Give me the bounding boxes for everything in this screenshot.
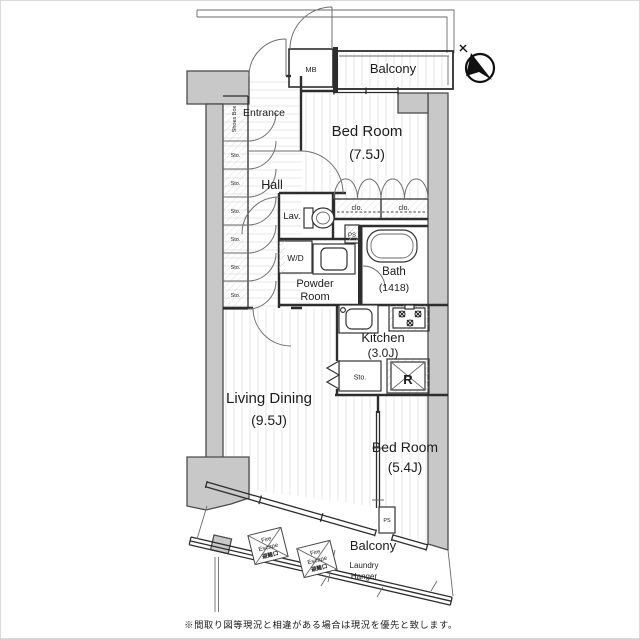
fire-escape-hatch-2: Fire Escape 避難口 — [297, 540, 337, 577]
refrigerator-label: R — [403, 372, 413, 387]
storage-label-5: Sto. — [231, 265, 241, 271]
washer-dryer-label: W/D — [287, 253, 304, 263]
bathtub-icon — [367, 230, 417, 262]
pipe-space-label-lower: PS — [383, 518, 391, 524]
north-arrow-icon — [460, 45, 494, 82]
kitchen-label: Kitchen — [361, 330, 404, 345]
fire-escape-hatch-1: Fire Escape 避難口 — [248, 527, 288, 564]
closet-label-2: clo. — [399, 205, 410, 212]
bath-label: Bath — [382, 266, 406, 278]
bedroom-2-size: (5.4J) — [388, 460, 423, 475]
living-dining-label: Living Dining — [226, 390, 312, 407]
laundry-hanger-label-line2: Hanger — [351, 572, 378, 581]
kitchen-storage-label: Sto. — [354, 375, 367, 382]
storage-label-2: Sto. — [231, 181, 241, 187]
balcony-top-label: Balcony — [370, 61, 417, 76]
stove-icon — [389, 305, 429, 331]
storage-label-6: Sto. — [231, 293, 241, 299]
powder-room-label-line1: Powder — [296, 278, 334, 290]
balcony-bottom-label: Balcony — [350, 538, 397, 553]
pipe-space-label-upper: PS — [348, 233, 356, 239]
powder-room-label-line2: Room — [300, 291, 329, 303]
storage-label-1: Sto. — [231, 153, 241, 159]
toilet-icon — [304, 208, 334, 228]
floor-plan-page: Fire Escape 避難口 Fire Escape 避難口 Balcony … — [0, 0, 640, 639]
laundry-hanger-label-line1: Laundry — [350, 561, 379, 570]
bedroom-1-size: (7.5J) — [349, 146, 385, 162]
meter-box-label: MB — [305, 65, 316, 74]
storage-label-4: Sto. — [231, 237, 241, 243]
closet-label-1: clo. — [352, 205, 363, 212]
bedroom-1-label: Bed Room — [332, 123, 403, 140]
storage-label-3: Sto. — [231, 209, 241, 215]
kitchen-sink-icon — [339, 305, 378, 333]
bath-size: (1418) — [379, 282, 409, 294]
lavatory-label: Lav. — [283, 211, 300, 222]
entrance-label: Entrance — [243, 107, 285, 119]
kitchen-size: (3.0J) — [368, 346, 399, 360]
hall-label: Hall — [261, 178, 283, 192]
powder-sink-icon — [313, 244, 355, 274]
shoes-box-label: Shoes Box — [232, 105, 238, 132]
floor-plan-drawing: Fire Escape 避難口 Fire Escape 避難口 Balcony … — [1, 1, 640, 639]
bedroom-2-label: Bed Room — [372, 439, 438, 455]
living-dining-size: (9.5J) — [251, 412, 287, 428]
disclaimer-note: ※間取り図等現況と相違がある場合は現況を優先と致します。 — [184, 619, 457, 630]
